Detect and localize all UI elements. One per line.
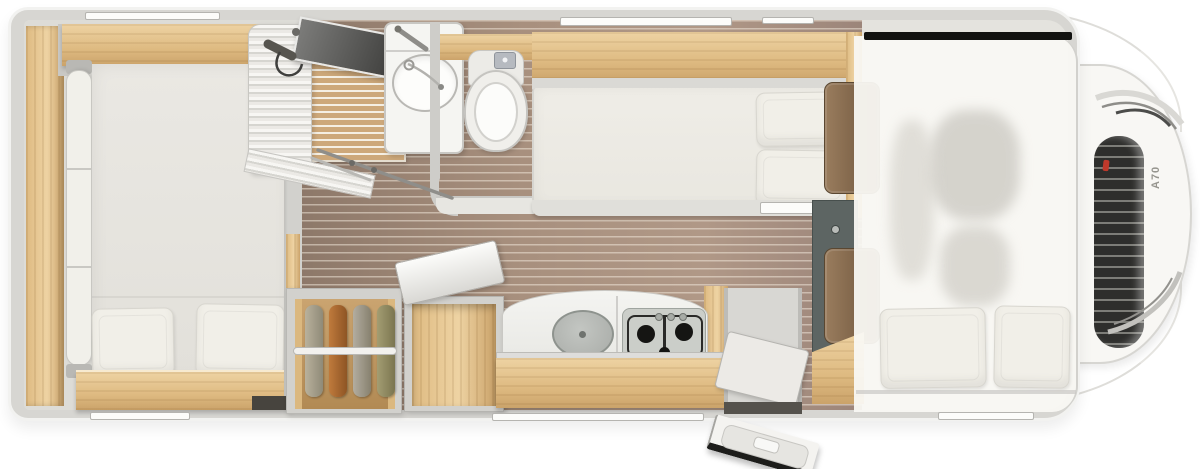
hob-knob-1 xyxy=(655,313,663,321)
alcove-bed-panel xyxy=(854,36,1078,412)
window-rear-bedroom-top xyxy=(85,12,220,20)
burner-left xyxy=(637,325,655,343)
window-kitchen-bottom xyxy=(492,413,704,421)
flush-control-panel xyxy=(494,52,516,69)
front-grille xyxy=(1094,136,1144,348)
cab-ghost-seatback xyxy=(890,120,934,280)
alcove-top-rail xyxy=(864,32,1072,40)
model-badge: A70 xyxy=(1150,148,1172,206)
washroom-divider-wall xyxy=(430,22,440,182)
cab-ghost-console xyxy=(940,226,1010,306)
bed-fold-line xyxy=(92,296,290,298)
window-alcove-top xyxy=(762,17,814,24)
wall-wood-trim xyxy=(286,234,300,294)
counter-seam xyxy=(616,296,618,358)
kitchen-drawer-front xyxy=(496,358,728,408)
bed-grab-handle xyxy=(760,202,816,214)
pillow-right xyxy=(195,303,284,377)
alcove-pillow-right xyxy=(993,305,1070,388)
window-rear-bedroom-bottom xyxy=(90,412,190,420)
wardrobe xyxy=(286,288,402,414)
hob-knob-3 xyxy=(679,313,687,321)
entry-door-open xyxy=(706,414,820,469)
alcove-pillow-left xyxy=(879,307,986,389)
washbasin-bowl xyxy=(392,54,458,112)
headboard-seam-2 xyxy=(67,266,91,268)
pillow-left xyxy=(91,307,174,376)
belt-anchor-1 xyxy=(831,225,840,234)
washroom-ledge xyxy=(436,196,534,214)
sink-lid-knob xyxy=(579,331,586,338)
hob-knob-2 xyxy=(667,313,675,321)
overhead-locker xyxy=(62,24,260,66)
single-bed-headboard xyxy=(532,32,862,82)
motorhome-floorplan: A70 xyxy=(0,0,1200,469)
top-load-interior xyxy=(412,304,496,406)
cab-ghost-engine xyxy=(930,110,1020,220)
burner-right xyxy=(675,323,693,341)
alcove-front-lip xyxy=(856,390,1076,394)
entry-well-shadow xyxy=(724,402,802,414)
clothes-rail xyxy=(293,347,397,355)
window-cab-door-bottom xyxy=(938,412,1034,420)
toilet-seat xyxy=(474,82,518,142)
window-single-bed-top xyxy=(560,17,732,26)
headboard-seam-1 xyxy=(67,168,91,170)
rear-wardrobe-panel xyxy=(26,26,64,406)
headboard-panel xyxy=(66,70,92,366)
